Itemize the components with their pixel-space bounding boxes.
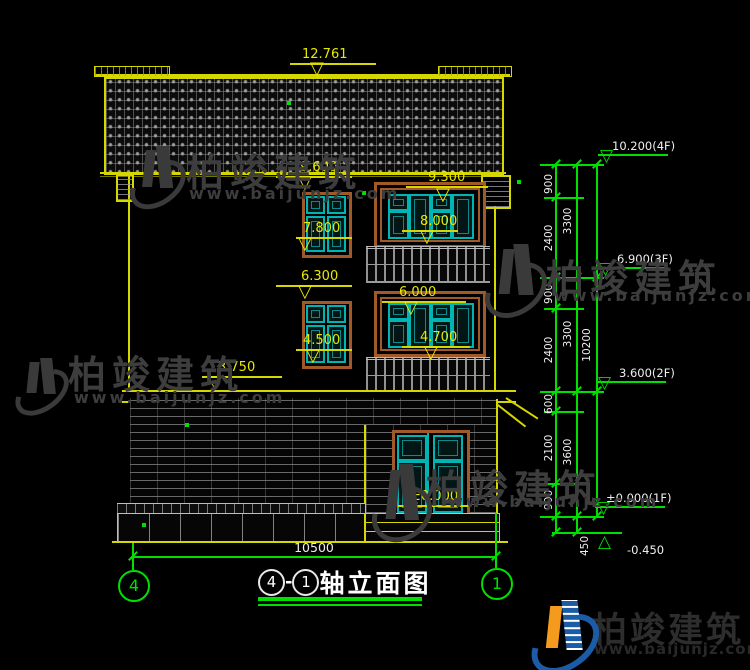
- dim-arrow-icon: ▽: [436, 186, 450, 204]
- osnap-dot: [287, 101, 291, 105]
- balcony-rail-line: [366, 264, 490, 265]
- dim-line: [382, 301, 466, 303]
- door-panel: [397, 435, 427, 461]
- level-marker-icon: △: [598, 534, 611, 551]
- osnap-dot: [517, 180, 521, 184]
- dim-arrow-icon: ▽: [420, 228, 434, 246]
- window-pane: [388, 320, 409, 348]
- canopy-right-slope: [493, 401, 526, 427]
- roof-ridge-end-right: [438, 66, 512, 77]
- dim-line: [296, 349, 352, 351]
- chain-floor-3300: 3300: [562, 208, 574, 235]
- title-axis-left: 4: [258, 569, 285, 596]
- roof-ridge-end-left: [94, 66, 170, 77]
- chain-boundary: [544, 197, 584, 199]
- brand-logo-icon: [534, 600, 592, 664]
- chain-floor-3300: 3300: [562, 321, 574, 348]
- dim-arrow-icon: ▽: [404, 299, 418, 317]
- level-label-2f: 3.600(2F): [619, 366, 675, 380]
- level-marker-icon: ▽: [600, 148, 613, 165]
- chain-seg-900: 900: [543, 174, 555, 194]
- chain-total-height: 10200: [581, 328, 593, 361]
- watermark-site-text: www.baijunjz.com: [554, 286, 750, 305]
- dim-line: [276, 285, 352, 287]
- window-pane: [388, 211, 409, 239]
- balcony-rail-line: [366, 375, 490, 376]
- dim-arrow-icon: ▽: [424, 344, 438, 362]
- watermark-site-text: www.baijunjz.com: [189, 184, 400, 203]
- plinth-panels: [117, 513, 365, 542]
- dim-ridge-elevation: 12.761: [302, 47, 348, 62]
- axis-bubble-4: 4: [118, 570, 150, 602]
- chain-foundation-450: 450: [579, 536, 591, 556]
- title-underline-thick: [258, 597, 422, 601]
- axis-bubble-1: 1: [481, 568, 513, 600]
- level-label-foundation: -0.450: [627, 543, 664, 557]
- dim-arrow-icon: ▽: [298, 283, 312, 301]
- dim-arrow-icon: ▽: [298, 235, 312, 253]
- dim-arrow-icon: ▽: [306, 347, 320, 365]
- dim-total-width-value: 10500: [282, 540, 346, 555]
- drawing-title: 4-1轴立面图: [258, 564, 432, 596]
- window-pane: [327, 305, 346, 323]
- chain-seg-600: 600: [543, 394, 555, 414]
- brand-site-text: www.baijunjz.com: [594, 640, 750, 658]
- dim-ridge-arrow-icon: ▽: [310, 60, 324, 78]
- level-label-4f: 10.200(4F): [612, 139, 675, 153]
- title-label: 轴立面图: [319, 569, 431, 598]
- watermark-logo-icon: [16, 358, 64, 404]
- watermark-logo-icon: [486, 244, 542, 310]
- dim-line-total-width: [133, 556, 497, 558]
- watermark-logo-icon: [131, 146, 181, 200]
- osnap-dot: [185, 423, 189, 427]
- chain-level-foundation: [552, 532, 622, 534]
- title-dash: -: [285, 572, 292, 593]
- chain-seg-2400: 2400: [543, 337, 555, 364]
- title-axis-right: 1: [292, 569, 319, 596]
- watermark-logo-icon: [374, 464, 426, 536]
- title-underline-thin: [258, 604, 422, 606]
- window-pane: [431, 303, 452, 320]
- window-pane: [306, 305, 325, 323]
- dim-extension-right: [495, 513, 497, 568]
- dim-3f-mid-head: 9.300: [428, 170, 465, 185]
- level-marker-icon: ▽: [598, 375, 611, 392]
- osnap-dot: [142, 523, 146, 527]
- watermark-site-text: www.baijunjz.com: [448, 492, 659, 511]
- watermark-building-icon: [40, 358, 56, 394]
- dim-ridge-line: [290, 63, 376, 65]
- chain-boundary: [544, 308, 584, 310]
- cad-elevation-drawing: 12.761 ▽ 9.600 ▽ 7.800 ▽ 9.300 ▽ 8.000 ▽: [0, 0, 750, 670]
- balcony-3f-railing: [366, 246, 490, 283]
- watermark-site-text: www.baijunjz.com: [74, 388, 285, 407]
